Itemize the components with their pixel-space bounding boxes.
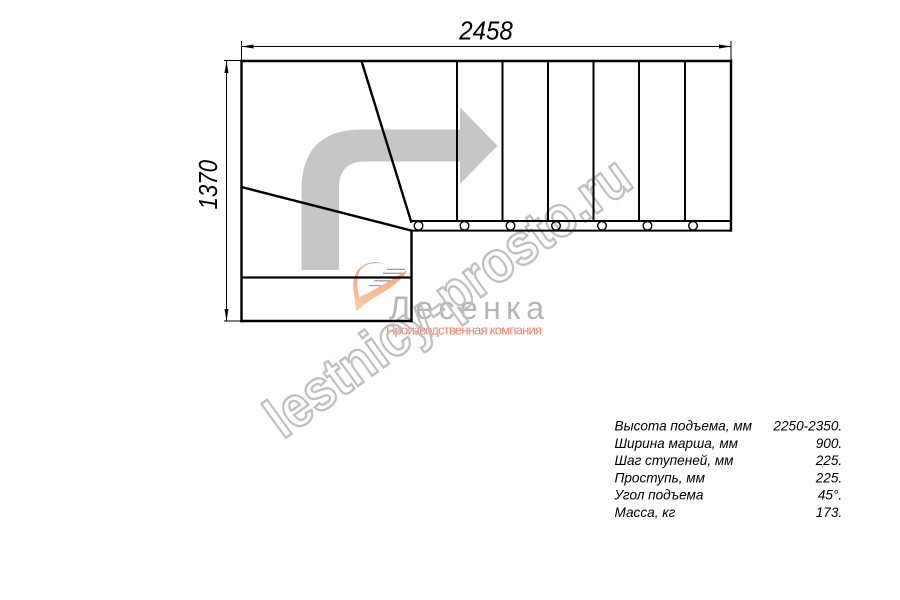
svg-text:Ширина марша, мм: Ширина марша, мм	[615, 436, 739, 451]
svg-text:Высота подъема, мм: Высота подъема, мм	[615, 419, 753, 434]
svg-text:225.: 225.	[815, 470, 842, 485]
svg-text:Шаг ступеней, мм: Шаг ступеней, мм	[615, 453, 735, 468]
svg-text:Угол подъема: Угол подъема	[614, 488, 704, 503]
svg-text:2458: 2458	[458, 18, 513, 46]
svg-text:Проступь, мм: Проступь, мм	[615, 470, 706, 485]
svg-text:Масса, кг: Масса, кг	[615, 505, 676, 520]
svg-text:45°.: 45°.	[818, 488, 842, 503]
svg-text:173.: 173.	[816, 505, 842, 520]
svg-text:1370: 1370	[195, 160, 223, 210]
svg-text:900.: 900.	[816, 436, 842, 451]
svg-text:2250-2350.: 2250-2350.	[772, 419, 842, 434]
svg-text:225.: 225.	[815, 453, 842, 468]
